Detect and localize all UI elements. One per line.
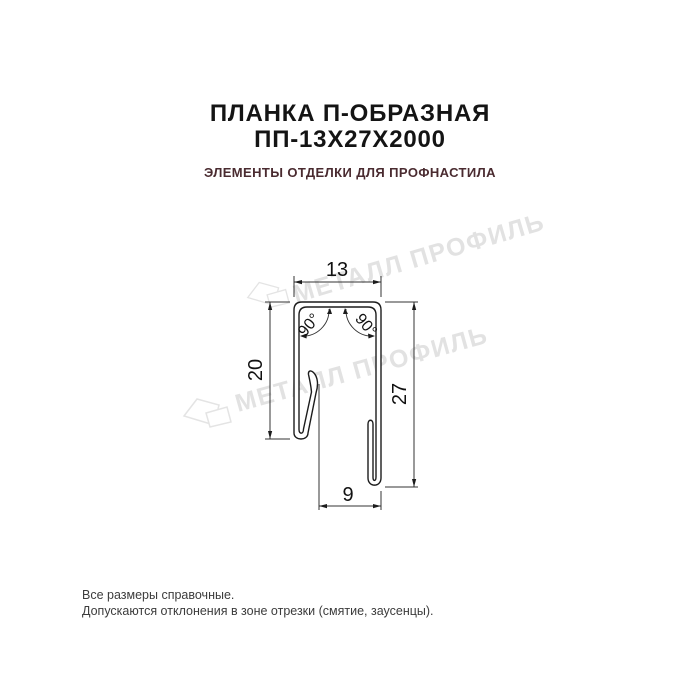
watermark-middle-left: МЕТАЛЛ ПРОФИЛЬ — [184, 321, 491, 427]
watermark-text: МЕТАЛЛ ПРОФИЛЬ — [232, 321, 491, 418]
watermark-top-right: МЕТАЛЛ ПРОФИЛЬ — [248, 208, 548, 309]
footer-notes: Все размеры справочные. Допускаются откл… — [82, 588, 434, 619]
dim-label-bottom-width: 9 — [342, 484, 353, 506]
dim-label-top-width: 13 — [326, 259, 348, 281]
product-card: ПЛАНКА П-ОБРАЗНАЯ ПП-13Х27Х2000 ЭЛЕМЕНТЫ… — [0, 0, 700, 700]
footer-note-line1: Все размеры справочные. — [82, 588, 434, 604]
dim-label-right-height: 27 — [389, 383, 411, 405]
dim-label-left-height: 20 — [245, 359, 267, 381]
footer-note-line2: Допускаются отклонения в зоне отрезки (с… — [82, 604, 434, 620]
dimension-left-height — [265, 302, 290, 439]
